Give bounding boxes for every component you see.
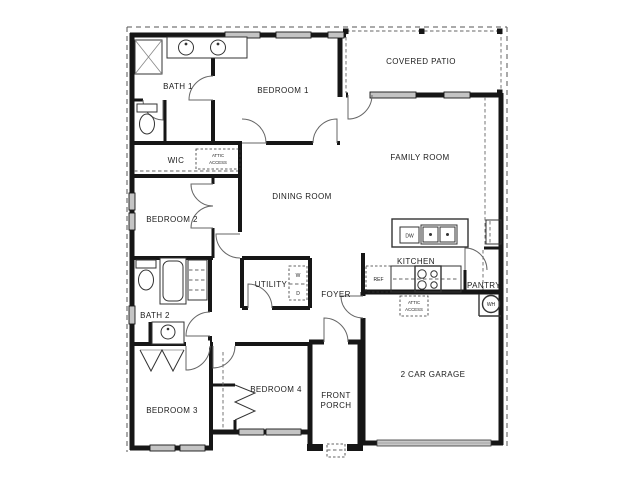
bath2-vanity (152, 322, 184, 344)
attic-access-wic-label-line1: ATTIC (212, 153, 224, 158)
attic-access-wic-label-line2: ACCESS (209, 160, 227, 165)
attic-access-garage-label-line1: ATTIC (408, 300, 420, 305)
dryer-label: D (296, 291, 300, 297)
refrigerator-label: REF (374, 277, 384, 283)
bath2-toilet (136, 260, 156, 290)
room-label-foyer: FOYER (321, 290, 351, 299)
room-label-front-porch-line1: FRONT (321, 391, 351, 400)
room-label-dining-room: DINING ROOM (272, 192, 332, 201)
kitchen-island (392, 219, 468, 247)
room-label-family-room: FAMILY ROOM (390, 153, 449, 162)
room-label-bedroom2: BEDROOM 2 (146, 215, 198, 224)
room-label-wic: WIC (168, 156, 185, 165)
room-label-bedroom4: BEDROOM 4 (250, 385, 302, 394)
bath2-tub (160, 258, 186, 304)
room-label-covered-patio: COVERED PATIO (386, 57, 456, 66)
room-label-front-porch-line2: PORCH (321, 401, 352, 410)
linen-closet (188, 260, 207, 300)
bath1-shower (135, 40, 162, 74)
room-label-bath1: BATH 1 (163, 82, 193, 91)
room-label-bath2: BATH 2 (140, 311, 170, 320)
room-label-bedroom1: BEDROOM 1 (257, 86, 309, 95)
room-label-pantry: PANTRY (467, 281, 501, 290)
fixture-labels: ATTIC ACCESS ATTIC ACCESS DW REF WH W D (209, 153, 495, 312)
garage-door (377, 440, 491, 446)
floor-plan: BATH 1 BEDROOM 1 COVERED PATIO FAMILY RO… (0, 0, 640, 490)
room-label-utility: UTILITY (255, 280, 288, 289)
kitchen-counter (391, 266, 461, 292)
room-label-garage: 2 CAR GARAGE (401, 370, 466, 379)
dishwasher-label: DW (405, 234, 414, 240)
bath1-vanity (167, 37, 247, 58)
bedroom3-closet-bifold (140, 350, 184, 371)
porch-steps (327, 444, 345, 457)
room-label-kitchen: KITCHEN (397, 257, 435, 266)
room-label-bedroom3: BEDROOM 3 (146, 406, 198, 415)
room-labels: BATH 1 BEDROOM 1 COVERED PATIO FAMILY RO… (140, 57, 501, 415)
kitchen-sink (421, 225, 457, 244)
door-openings (143, 76, 372, 348)
washer-label: W (296, 273, 301, 279)
attic-access-garage-box (400, 296, 428, 316)
floor-plan-drawing: BATH 1 BEDROOM 1 COVERED PATIO FAMILY RO… (0, 0, 640, 490)
attic-access-wic-box (196, 149, 240, 169)
water-heater-label: WH (487, 302, 496, 308)
attic-access-garage-label-line2: ACCESS (405, 307, 423, 312)
bath1-toilet (137, 104, 157, 134)
